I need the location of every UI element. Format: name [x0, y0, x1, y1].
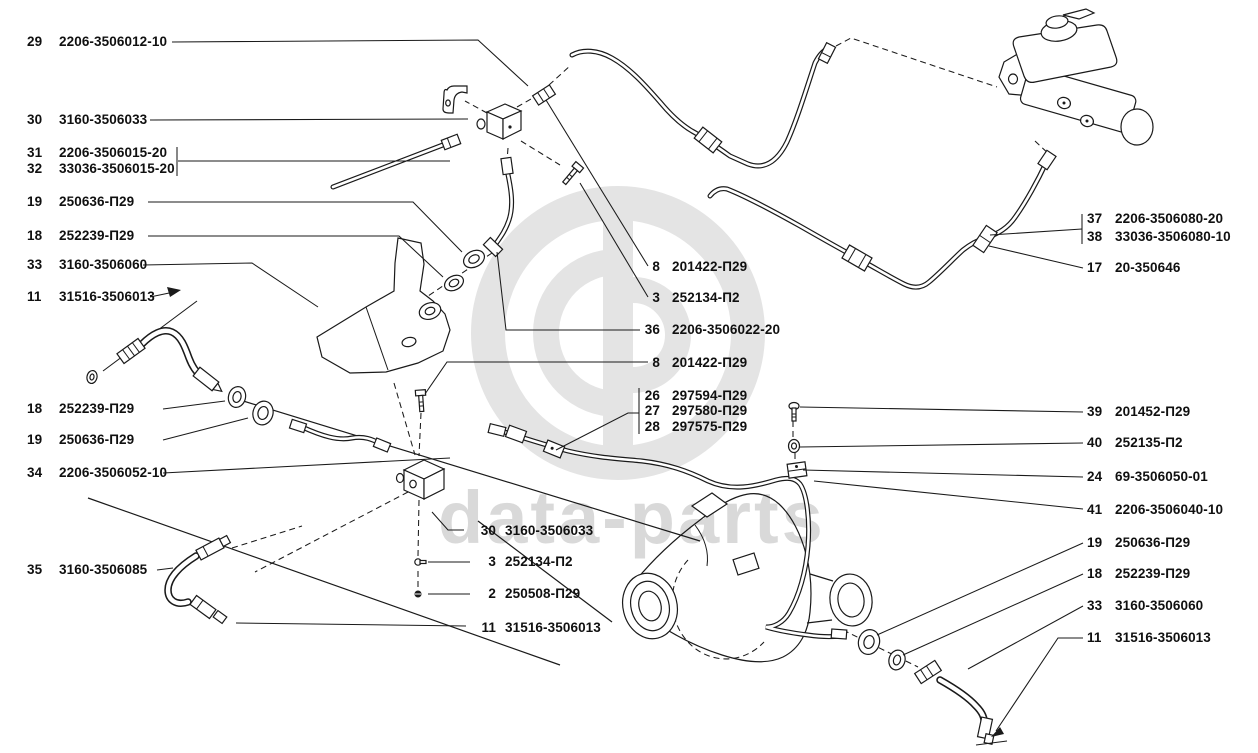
callout-18: 18252239-П29: [27, 228, 134, 243]
callout-number: 33: [27, 257, 49, 272]
callout-41: 412206-3506040-10: [1087, 502, 1223, 517]
callout-number: 3: [470, 554, 496, 569]
part-code: 2206-3506052-10: [59, 465, 167, 480]
pipe-clamp-bracket: [443, 86, 467, 113]
callout-number: 40: [1087, 435, 1107, 450]
screw-icon: [415, 559, 426, 565]
callout-31: 312206-3506015-20: [27, 145, 167, 160]
callout-number: 19: [27, 194, 49, 209]
part-code: 31516-3506013: [59, 289, 155, 304]
callout-number: 11: [1087, 630, 1107, 645]
part-code: 33036-3506015-20: [59, 161, 175, 176]
callout-3b: 3252134-П2: [470, 554, 573, 569]
callout-18c: 18252239-П29: [1087, 566, 1190, 581]
callout-number: 8: [636, 259, 660, 274]
part-code: 297580-П29: [672, 403, 747, 418]
callout-number: 30: [470, 523, 496, 538]
callout-8b: 8201422-П29: [636, 355, 747, 370]
callout-number: 37: [1087, 211, 1107, 226]
callout-number: 27: [636, 403, 660, 418]
junction-box-top: [477, 104, 521, 139]
callout-number: 2: [470, 586, 496, 601]
callout-24: 2469-3506050-01: [1087, 469, 1208, 484]
callout-number: 24: [1087, 469, 1107, 484]
callout-number: 18: [27, 401, 49, 416]
callout-number: 31: [27, 145, 49, 160]
callout-26: 26297594-П29: [636, 388, 747, 403]
part-code: 2206-3506022-20: [672, 322, 780, 337]
callout-number: 39: [1087, 404, 1107, 419]
callout-19: 19250636-П29: [27, 194, 134, 209]
screw-icon: [415, 591, 422, 598]
part-code: 3160-3506085: [59, 562, 147, 577]
bolt-icon: [560, 162, 583, 187]
callout-number: 38: [1087, 229, 1107, 244]
callout-39: 39201452-П29: [1087, 404, 1190, 419]
callout-11b: 1131516-3506013: [470, 620, 601, 635]
callout-35: 353160-3506085: [27, 562, 147, 577]
callout-number: 17: [1087, 260, 1107, 275]
callout-2: 2250508-П29: [470, 586, 580, 601]
part-code: 252135-П2: [1115, 435, 1183, 450]
callout-number: 33: [1087, 598, 1107, 613]
part-code: 297575-П29: [672, 419, 747, 434]
callout-number: 26: [636, 388, 660, 403]
part-code: 252239-П29: [59, 228, 134, 243]
part-code: 33036-3506080-10: [1115, 229, 1231, 244]
part-code: 250636-П29: [59, 194, 134, 209]
callout-number: 19: [27, 432, 49, 447]
callout-28: 28297575-П29: [636, 419, 747, 434]
part-code: 3160-3506033: [59, 112, 147, 127]
part-code: 201422-П29: [672, 259, 747, 274]
callout-number: 18: [27, 228, 49, 243]
callout-number: 8: [636, 355, 660, 370]
bolt-icon: [789, 403, 799, 422]
part-code: 201452-П29: [1115, 404, 1190, 419]
part-code: 3160-3506060: [1115, 598, 1203, 613]
part-code: 201422-П29: [672, 355, 747, 370]
callout-17: 1720-350646: [1087, 260, 1180, 275]
part-code: 69-3506050-01: [1115, 469, 1208, 484]
callout-number: 34: [27, 465, 49, 480]
callout-number: 19: [1087, 535, 1107, 550]
callout-19b: 19250636-П29: [27, 432, 134, 447]
junction-box-bottom: [397, 460, 445, 499]
part-code: 252239-П29: [59, 401, 134, 416]
callout-18b: 18252239-П29: [27, 401, 134, 416]
callout-34: 342206-3506052-10: [27, 465, 167, 480]
callout-40: 40252135-П2: [1087, 435, 1183, 450]
part-code: 2206-3506015-20: [59, 145, 167, 160]
part-code: 250508-П29: [505, 586, 580, 601]
callout-number: 11: [470, 620, 496, 635]
callout-32: 3233036-3506015-20: [27, 161, 175, 176]
callout-33: 333160-3506060: [27, 257, 147, 272]
callout-number: 18: [1087, 566, 1107, 581]
master-cylinder: [999, 9, 1153, 145]
callout-number: 35: [27, 562, 49, 577]
callout-30b: 303160-3506033: [470, 523, 593, 538]
part-code: 250636-П29: [59, 432, 134, 447]
callout-11c: 1131516-3506013: [1087, 630, 1211, 645]
callout-11: 1131516-3506013: [27, 289, 155, 304]
part-code: 20-350646: [1115, 260, 1180, 275]
part-code: 252239-П29: [1115, 566, 1190, 581]
part-code: 3160-3506060: [59, 257, 147, 272]
callout-number: 29: [27, 34, 49, 49]
part-code: 31516-3506013: [505, 620, 601, 635]
watermark-text: data-parts: [438, 476, 826, 559]
callout-8: 8201422-П29: [636, 259, 747, 274]
diagram-artwork: data-parts: [0, 0, 1258, 753]
bracket-plate: [317, 238, 450, 373]
part-code: 252134-П2: [672, 290, 740, 305]
callout-37: 372206-3506080-20: [1087, 211, 1223, 226]
part-code: 297594-П29: [672, 388, 747, 403]
callout-number: 36: [636, 322, 660, 337]
callout-29: 292206-3506012-10: [27, 34, 167, 49]
callout-number: 28: [636, 419, 660, 434]
part-code: 2206-3506080-20: [1115, 211, 1223, 226]
callout-number: 30: [27, 112, 49, 127]
callout-27: 27297580-П29: [636, 403, 747, 418]
part-code: 31516-3506013: [1115, 630, 1211, 645]
callout-36: 362206-3506022-20: [636, 322, 780, 337]
part-code: 2206-3506040-10: [1115, 502, 1223, 517]
callout-number: 32: [27, 161, 49, 176]
callout-3: 3252134-П2: [636, 290, 740, 305]
parts-diagram-canvas: data-parts: [0, 0, 1258, 753]
callout-19c: 19250636-П29: [1087, 535, 1190, 550]
part-code: 2206-3506012-10: [59, 34, 167, 49]
part-code: 252134-П2: [505, 554, 573, 569]
part-code: 250636-П29: [1115, 535, 1190, 550]
part-code: 3160-3506033: [505, 523, 593, 538]
callout-33b: 333160-3506060: [1087, 598, 1203, 613]
callout-38: 3833036-3506080-10: [1087, 229, 1231, 244]
callout-number: 41: [1087, 502, 1107, 517]
callout-number: 11: [27, 289, 49, 304]
callout-30: 303160-3506033: [27, 112, 147, 127]
callout-number: 3: [636, 290, 660, 305]
